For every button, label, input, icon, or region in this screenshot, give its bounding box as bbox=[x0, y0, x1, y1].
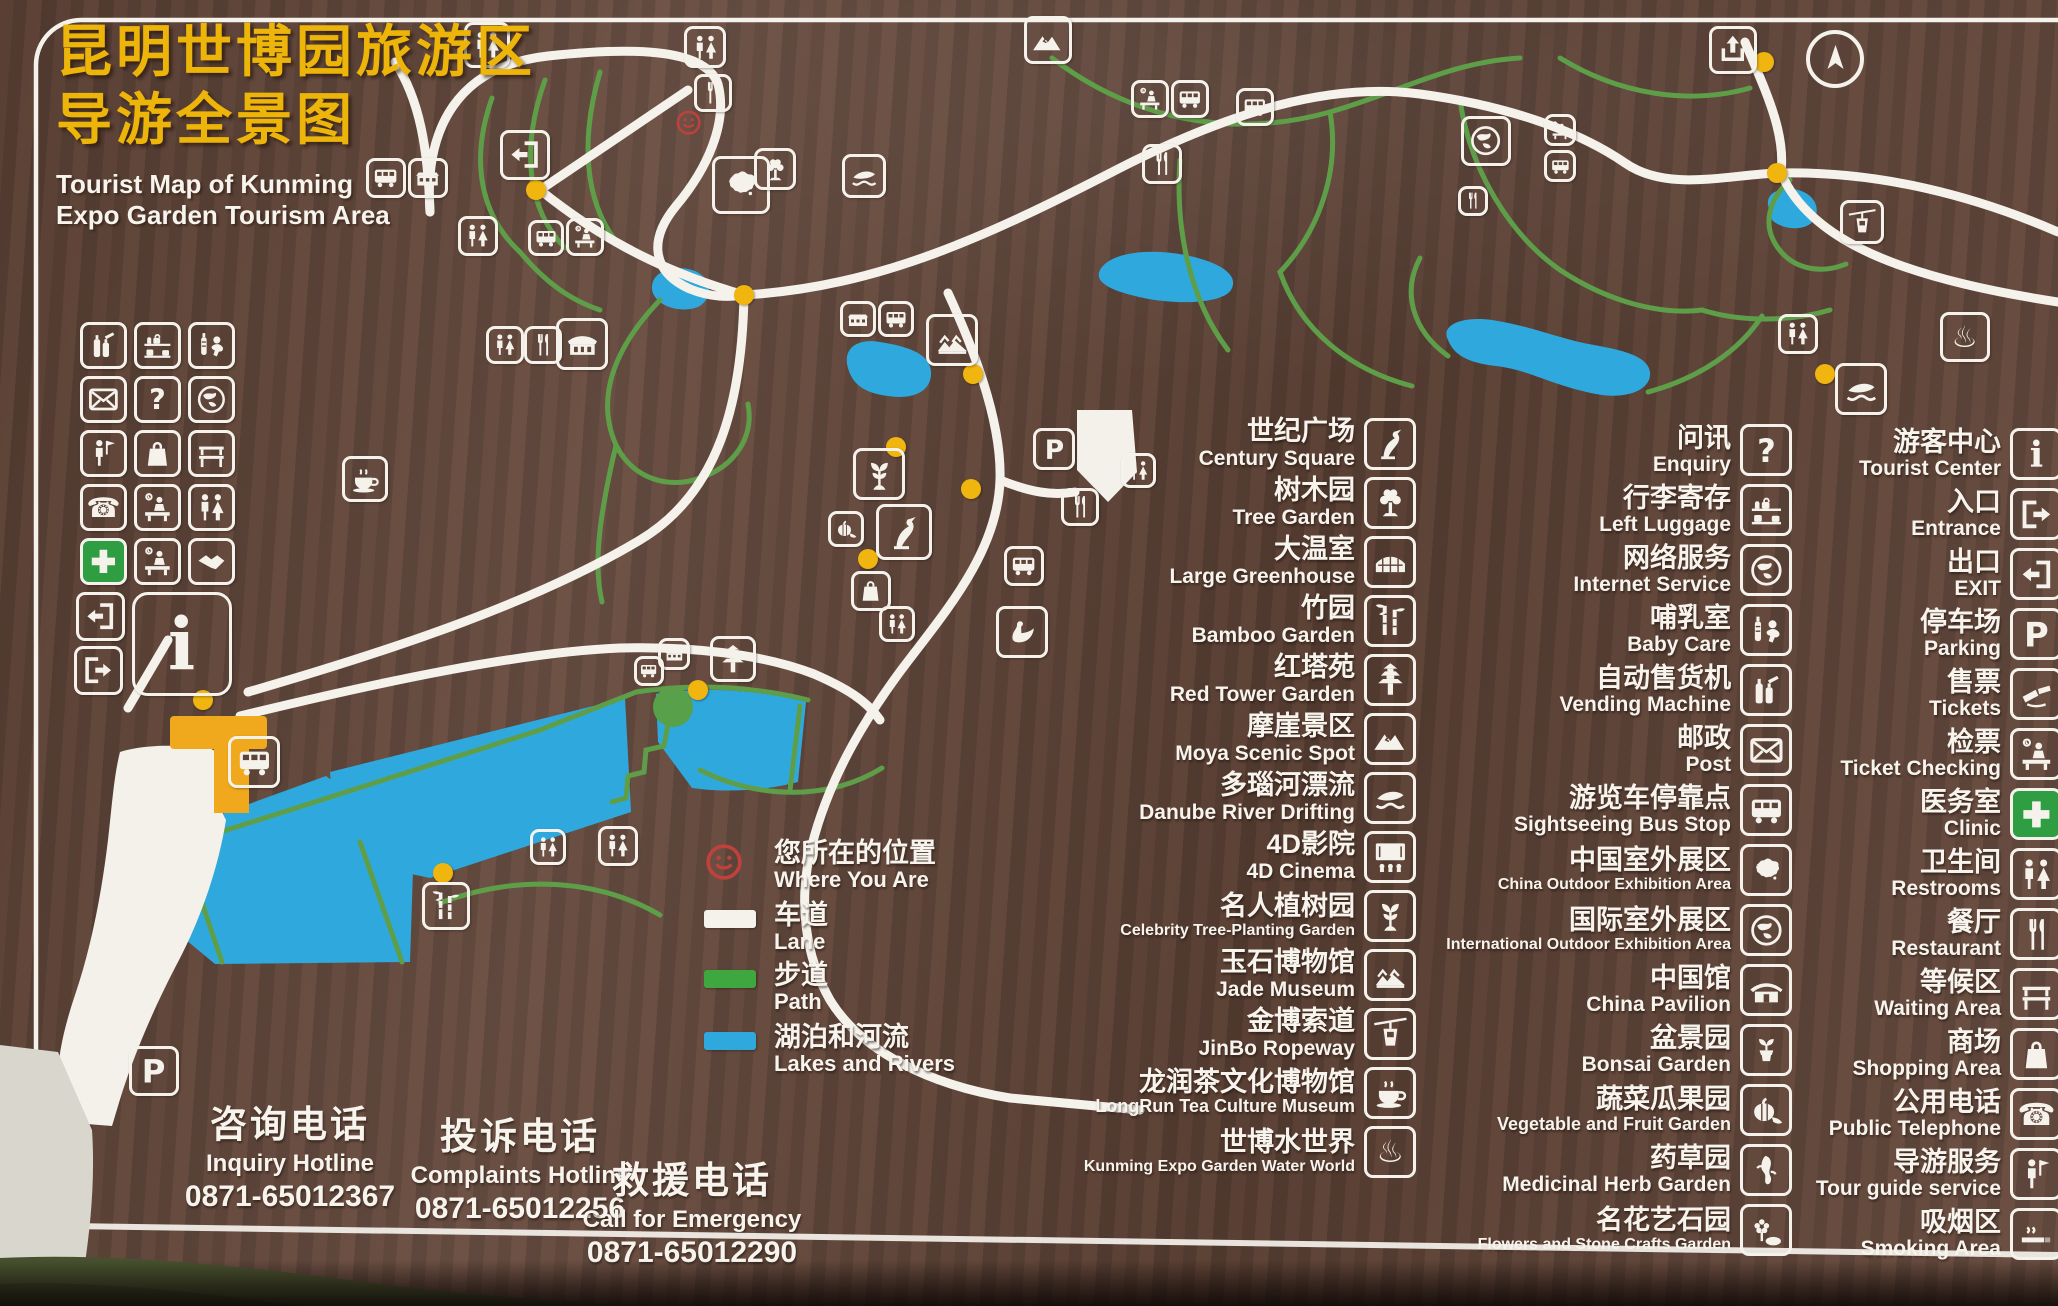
title-zh-line2: 导游全景图 bbox=[56, 86, 536, 154]
legend-label-zh: 游客中心 bbox=[1893, 428, 2001, 458]
key-path: 步道Path bbox=[704, 960, 828, 1015]
legend-label-zh: 检票 bbox=[1947, 728, 2001, 758]
tree-icon bbox=[754, 148, 796, 190]
legend-label-zh: 公用电话 bbox=[1893, 1088, 2001, 1118]
title-zh-line1: 昆明世博园旅游区 bbox=[56, 18, 536, 86]
lakes-swatch bbox=[704, 1032, 756, 1050]
legend-item: 售票 Tickets bbox=[1600, 664, 2058, 724]
legend-item: 医务室 Clinic bbox=[1600, 784, 2058, 844]
where-you-are-icon bbox=[704, 842, 744, 882]
inquiry-hotline: 咨询电话 Inquiry Hotline 0871-65012367 bbox=[160, 1094, 420, 1214]
legend-item: 吸烟区 Smoking Area bbox=[1600, 1204, 2058, 1264]
fork-icon bbox=[1458, 186, 1488, 216]
parking-icon bbox=[129, 1046, 179, 1096]
restrooms-icon bbox=[530, 829, 566, 865]
info-icon bbox=[132, 592, 232, 696]
hotline-number: 0871-65012290 bbox=[552, 1236, 832, 1270]
baby-icon bbox=[188, 322, 235, 369]
arrow-left-icon bbox=[2010, 548, 2058, 600]
concrete-corner bbox=[0, 1045, 93, 1306]
cross-icon bbox=[2010, 788, 2058, 840]
grass bbox=[0, 1257, 640, 1306]
page-title: 昆明世博园旅游区 导游全景图 Tourist Map of Kunming Ex… bbox=[56, 18, 536, 231]
bus-icon bbox=[1236, 88, 1274, 126]
hotline-zh: 咨询电话 bbox=[160, 1094, 420, 1148]
bag-icon bbox=[2010, 1028, 2058, 1080]
junction-dot bbox=[734, 285, 754, 305]
flagperson-icon bbox=[2010, 1148, 2058, 1200]
restrooms-icon bbox=[598, 826, 638, 866]
junction-dot bbox=[1767, 163, 1787, 183]
fork-icon bbox=[1142, 144, 1182, 184]
arrow-right-icon bbox=[2010, 488, 2058, 540]
legend-label-en: Tourist Center bbox=[1859, 457, 2001, 480]
key-label-en: Lane bbox=[774, 930, 828, 955]
service-icon bbox=[1131, 80, 1169, 118]
legend-item: 入口 Entrance bbox=[1600, 484, 2058, 544]
globe-icon bbox=[188, 376, 235, 423]
legend-label-zh: 餐厅 bbox=[1947, 908, 2001, 938]
legend-label-en: Entrance bbox=[1911, 517, 2001, 540]
legend-label-zh: 售票 bbox=[1947, 668, 2001, 698]
service-icon bbox=[2010, 728, 2058, 780]
restrooms-icon bbox=[1778, 314, 1818, 354]
smile-icon bbox=[672, 106, 706, 140]
emergency-hotline: 救援电话 Call for Emergency 0871-65012290 bbox=[552, 1150, 832, 1270]
bus-icon bbox=[878, 301, 914, 337]
legend-label-en: Restaurant bbox=[1891, 937, 2001, 960]
smoking-icon bbox=[2010, 1208, 2058, 1260]
cross-icon bbox=[80, 538, 127, 585]
bench-icon bbox=[188, 430, 235, 477]
key-lane: 车道Lane bbox=[704, 900, 828, 955]
restrooms-icon bbox=[188, 484, 235, 531]
handshake-icon bbox=[188, 538, 235, 585]
junction-dot bbox=[963, 364, 983, 384]
phone-icon bbox=[2010, 1088, 2058, 1140]
compass-icon bbox=[1806, 30, 1864, 88]
fork-icon bbox=[2010, 908, 2058, 960]
bench-icon bbox=[2010, 968, 2058, 1020]
restrooms-icon bbox=[2010, 848, 2058, 900]
title-en-line1: Tourist Map of Kunming bbox=[56, 169, 536, 200]
legend-item: 导游服务 Tour guide service bbox=[1600, 1144, 2058, 1204]
key-label: 车道 bbox=[774, 900, 828, 930]
parking-icon bbox=[2010, 608, 2058, 660]
boat-icon bbox=[842, 154, 886, 198]
legend-item: 卫生间 Restrooms bbox=[1600, 844, 2058, 904]
key-label: 步道 bbox=[774, 960, 828, 990]
junction-dot bbox=[1815, 364, 1835, 384]
legend-label-zh: 卫生间 bbox=[1920, 848, 2001, 878]
legend-item: 公用电话 Public Telephone bbox=[1600, 1084, 2058, 1144]
envelope-icon bbox=[80, 376, 127, 423]
lake-island bbox=[653, 687, 693, 727]
hotline-number: 0871-65012367 bbox=[160, 1180, 420, 1214]
legend-label-en: Tour guide service bbox=[1816, 1177, 2001, 1200]
teacup-icon bbox=[342, 456, 388, 502]
bag-icon bbox=[134, 430, 181, 477]
junction-dot bbox=[433, 863, 453, 883]
restrooms-icon bbox=[684, 26, 726, 68]
service-icon bbox=[1544, 114, 1576, 146]
legend-label-en: Tickets bbox=[1929, 697, 2001, 720]
legend-label-zh: 入口 bbox=[1947, 488, 2001, 518]
arrow-left-icon bbox=[76, 592, 125, 641]
legend-item: 等候区 Waiting Area bbox=[1600, 964, 2058, 1024]
signboard: ? ☎ ♨ i P bbox=[0, 0, 2058, 1306]
grass-dark bbox=[0, 1283, 300, 1306]
bamboo-icon bbox=[422, 882, 470, 930]
legend-label-en: Ticket Checking bbox=[1840, 757, 2001, 780]
hotspring-icon bbox=[1940, 312, 1990, 362]
service-icon bbox=[134, 484, 181, 531]
key-label-en: Path bbox=[774, 990, 828, 1015]
service-icon bbox=[566, 218, 604, 256]
legend-label-en: Restrooms bbox=[1891, 877, 2001, 900]
legend-label-en: Shopping Area bbox=[1852, 1057, 2001, 1080]
legend-label-zh: 医务室 bbox=[1920, 788, 2001, 818]
info-icon bbox=[2010, 428, 2058, 480]
arrow-right-icon bbox=[74, 646, 123, 695]
legend-label-zh: 停车场 bbox=[1920, 608, 2001, 638]
legend-item: 出口 EXIT bbox=[1600, 544, 2058, 604]
title-en-line2: Expo Garden Tourism Area bbox=[56, 200, 536, 231]
flagperson-icon bbox=[80, 430, 127, 477]
vending-icon bbox=[80, 322, 127, 369]
mountain-icon bbox=[1024, 16, 1072, 64]
legend-label-en: Smoking Area bbox=[1861, 1237, 2001, 1260]
legend-label-zh: 商场 bbox=[1947, 1028, 2001, 1058]
legend-label-en: EXIT bbox=[1954, 577, 2001, 600]
building-icon bbox=[840, 301, 876, 337]
legend-item: 游客中心 Tourist Center bbox=[1600, 424, 2058, 484]
legend-label-en: Clinic bbox=[1944, 817, 2001, 840]
luggage-icon bbox=[134, 322, 181, 369]
legend-item: 餐厅 Restaurant bbox=[1600, 904, 2058, 964]
ticket-icon bbox=[2010, 668, 2058, 720]
legend-label-zh: 等候区 bbox=[1920, 968, 2001, 998]
bus-icon bbox=[1171, 80, 1209, 118]
globe-icon bbox=[1461, 116, 1511, 166]
path-swatch bbox=[704, 970, 756, 988]
legend-label-zh: 出口 bbox=[1947, 548, 2001, 578]
legend-label-en: Parking bbox=[1924, 637, 2001, 660]
legend-label-zh: 吸烟区 bbox=[1920, 1208, 2001, 1238]
legend-facilities: 游客中心 Tourist Center 入口 Entrance 出口 EXIT bbox=[1600, 424, 2058, 1264]
bottom-shadow bbox=[0, 1260, 2058, 1306]
ropeway-icon bbox=[1840, 200, 1884, 244]
bus-icon bbox=[634, 656, 664, 686]
hotline-en: Inquiry Hotline bbox=[160, 1150, 420, 1178]
legend-label-zh: 导游服务 bbox=[1893, 1148, 2001, 1178]
legend-item: 商场 Shopping Area bbox=[1600, 1024, 2058, 1084]
temple-icon bbox=[556, 318, 608, 370]
legend-item: 停车场 Parking bbox=[1600, 604, 2058, 664]
junction-dot bbox=[688, 680, 708, 700]
legend-label-en: Waiting Area bbox=[1874, 997, 2001, 1020]
legend-label-en: Public Telephone bbox=[1829, 1117, 2001, 1140]
hotline-en: Call for Emergency bbox=[552, 1206, 832, 1234]
hotline-zh: 救援电话 bbox=[552, 1150, 832, 1204]
bus-icon bbox=[228, 736, 280, 788]
question-icon bbox=[134, 376, 181, 423]
legend-item: 检票 Ticket Checking bbox=[1600, 724, 2058, 784]
service-icon bbox=[134, 538, 181, 585]
pagoda-icon bbox=[710, 636, 756, 682]
boat-icon bbox=[1835, 363, 1887, 415]
museum-icon bbox=[926, 314, 978, 366]
junction-dot bbox=[1754, 52, 1774, 72]
arrow-up-icon bbox=[1709, 26, 1757, 74]
lane-swatch bbox=[704, 910, 756, 928]
bus-icon bbox=[1544, 150, 1576, 182]
phone-icon bbox=[80, 484, 127, 531]
restrooms-icon bbox=[486, 326, 524, 364]
